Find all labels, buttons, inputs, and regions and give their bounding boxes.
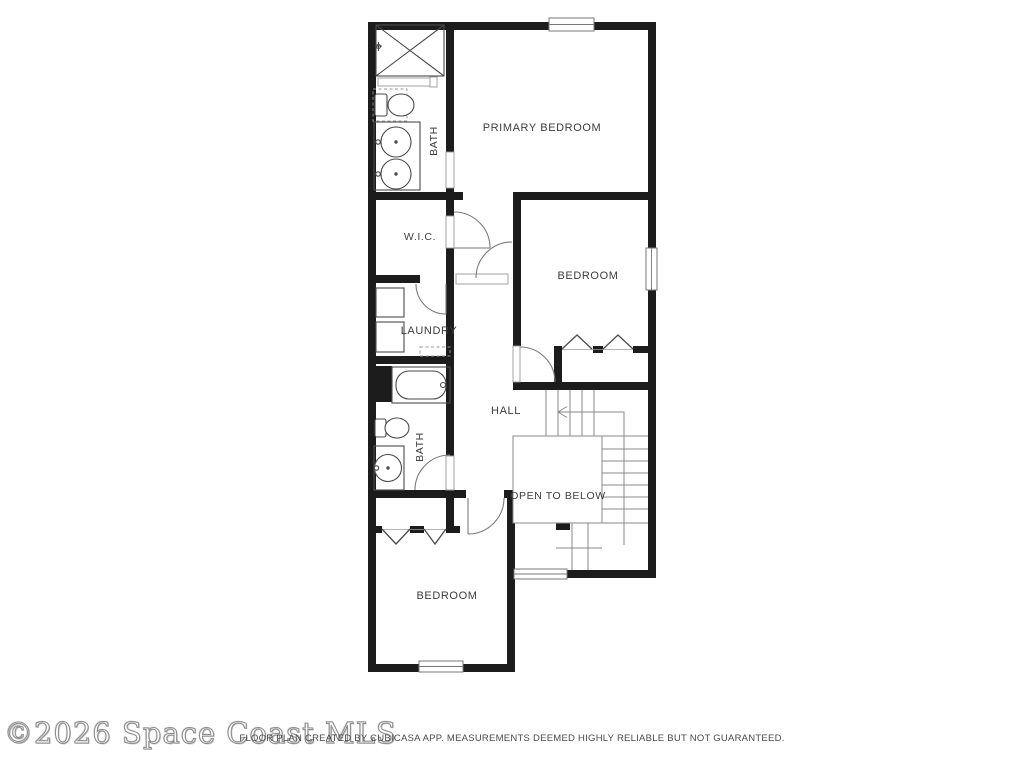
- door-swing-icon: [416, 284, 446, 314]
- walls: [368, 22, 656, 672]
- floor-plan-drawing: PRIMARY BEDROOM BATH W.I.C. BEDROOM LAUN…: [0, 0, 1024, 768]
- plumbing-chase: [370, 366, 392, 402]
- window-icon: [419, 661, 463, 672]
- bath-door-jamb: [446, 456, 454, 490]
- bedroom-door-leaf: [513, 346, 520, 382]
- door-swing-icon: [454, 212, 490, 248]
- open-to-below-void: [513, 436, 602, 523]
- sliding-door-icon: [446, 152, 454, 188]
- double-vanity-icon: [374, 122, 420, 190]
- shower-icon: [375, 25, 444, 76]
- vanity-sink-icon: [374, 446, 404, 490]
- cased-opening-icon: [456, 274, 508, 284]
- bathtub-icon: [392, 367, 450, 403]
- door-swing-icon: [468, 498, 504, 534]
- floor-plan-page: PRIMARY BEDROOM BATH W.I.C. BEDROOM LAUN…: [0, 0, 1024, 768]
- wic-door-leaf: [446, 216, 454, 248]
- room-label-primary-bedroom: PRIMARY BEDROOM: [483, 122, 602, 134]
- room-label-bedroom-bottom: BEDROOM: [416, 590, 477, 602]
- room-label-bath-lower: BATH: [414, 432, 426, 462]
- toilet-icon: [375, 418, 409, 438]
- door-swing-icon: [520, 347, 555, 382]
- toilet-icon: [373, 89, 414, 121]
- room-label-bedroom-middle: BEDROOM: [557, 270, 618, 282]
- room-label-open-to-below: OPEN TO BELOW: [510, 490, 606, 502]
- window-icon: [514, 569, 567, 579]
- shower-glass-door-icon: [378, 77, 437, 87]
- floorplan-disclaimer: FLOOR PLAN CREATED BY CUBICASA APP. MEAS…: [0, 733, 1024, 744]
- washer-icon: [376, 288, 404, 317]
- window-icon: [549, 18, 594, 31]
- appliance-dashed-outline: [420, 347, 450, 356]
- window-icon: [646, 248, 657, 290]
- room-label-bath-top: BATH: [428, 126, 440, 156]
- room-label-laundry: LAUNDRY: [401, 325, 458, 337]
- door-swing-icon: [476, 242, 512, 278]
- room-label-wic: W.I.C.: [404, 231, 436, 243]
- room-label-hall: HALL: [491, 405, 521, 417]
